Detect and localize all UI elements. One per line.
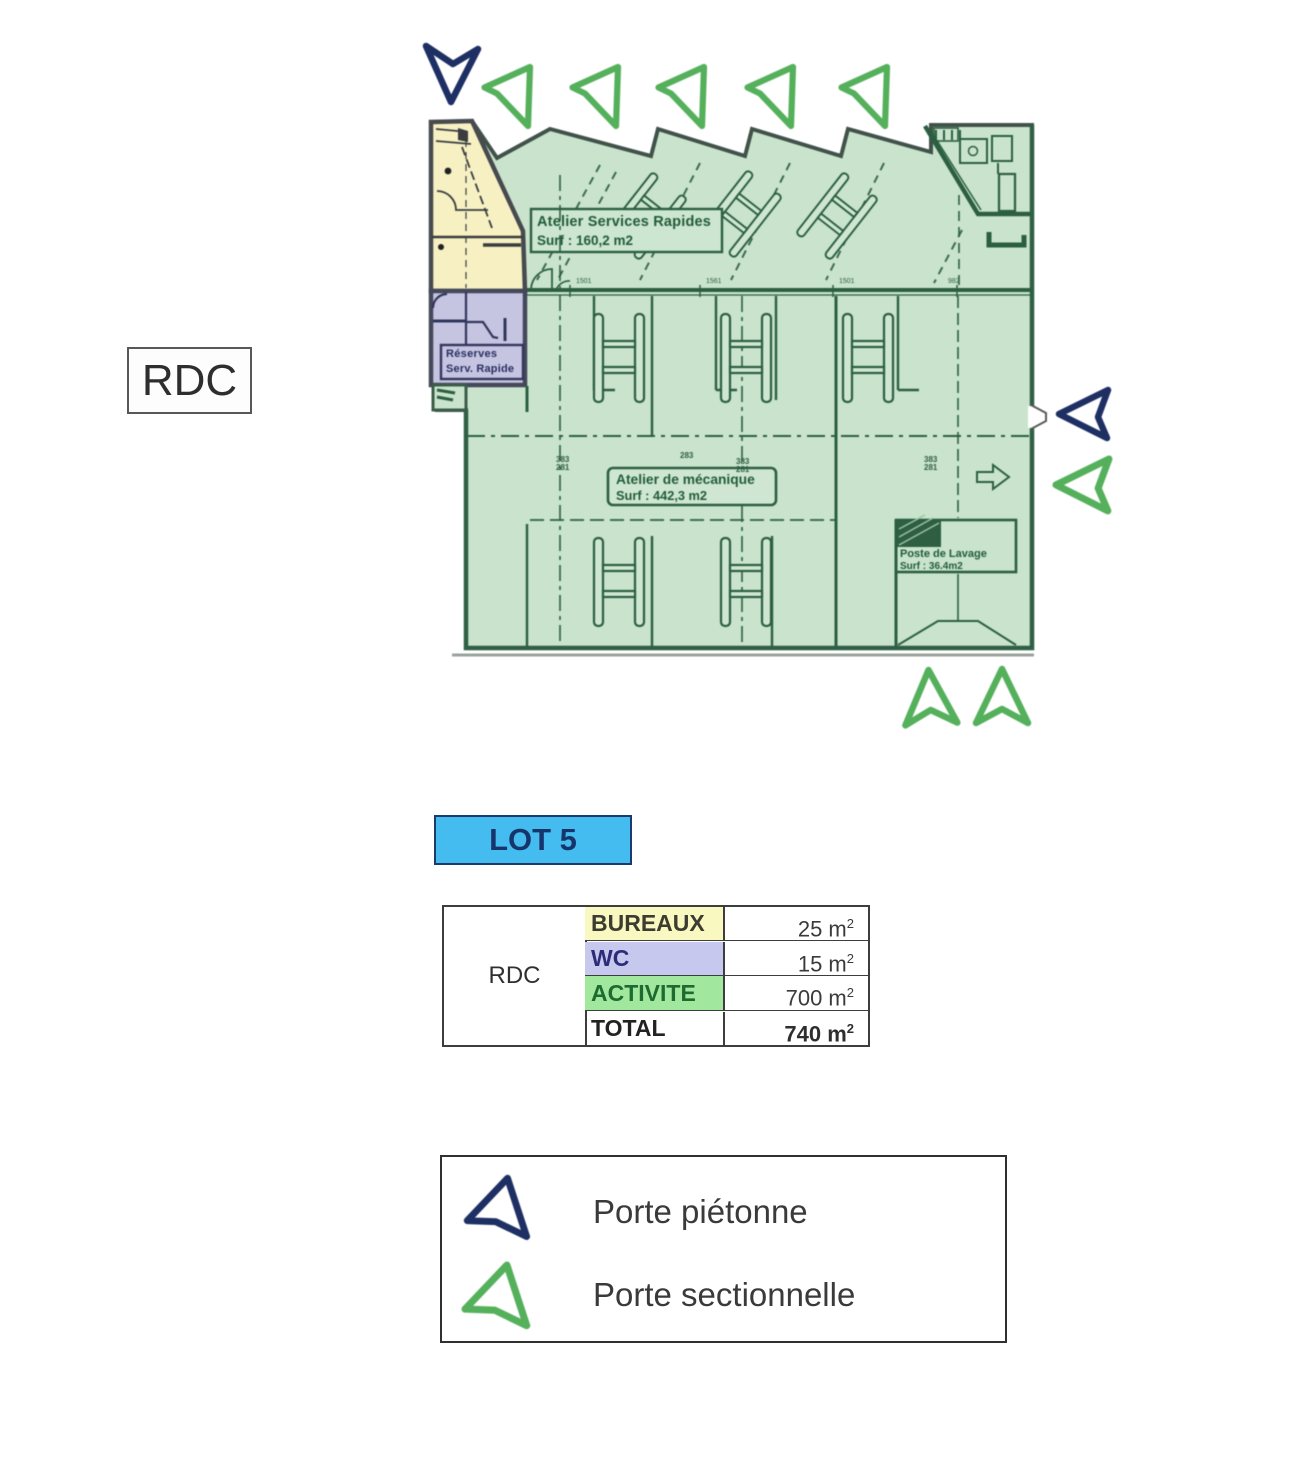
svg-text:Réserves: Réserves <box>446 348 497 360</box>
svg-text:1561: 1561 <box>706 278 722 285</box>
svg-text:1501: 1501 <box>576 278 592 285</box>
svg-text:Atelier de mécanique: Atelier de mécanique <box>616 472 755 487</box>
svg-text:982: 982 <box>948 278 960 285</box>
svg-text:Surf : 442,3 m2: Surf : 442,3 m2 <box>616 488 707 503</box>
svg-text:281: 281 <box>736 465 750 474</box>
svg-text:Poste de Lavage: Poste de Lavage <box>900 548 987 560</box>
svg-text:281: 281 <box>924 463 938 472</box>
svg-text:1501: 1501 <box>839 278 855 285</box>
svg-text:Serv. Rapide: Serv. Rapide <box>446 363 514 375</box>
svg-text:Surf : 160,2 m2: Surf : 160,2 m2 <box>537 233 633 248</box>
svg-text:281: 281 <box>556 463 570 472</box>
svg-text:Surf : 36.4m2: Surf : 36.4m2 <box>900 561 963 572</box>
svg-text:283: 283 <box>680 451 694 460</box>
svg-text:Atelier Services Rapides: Atelier Services Rapides <box>537 214 711 230</box>
